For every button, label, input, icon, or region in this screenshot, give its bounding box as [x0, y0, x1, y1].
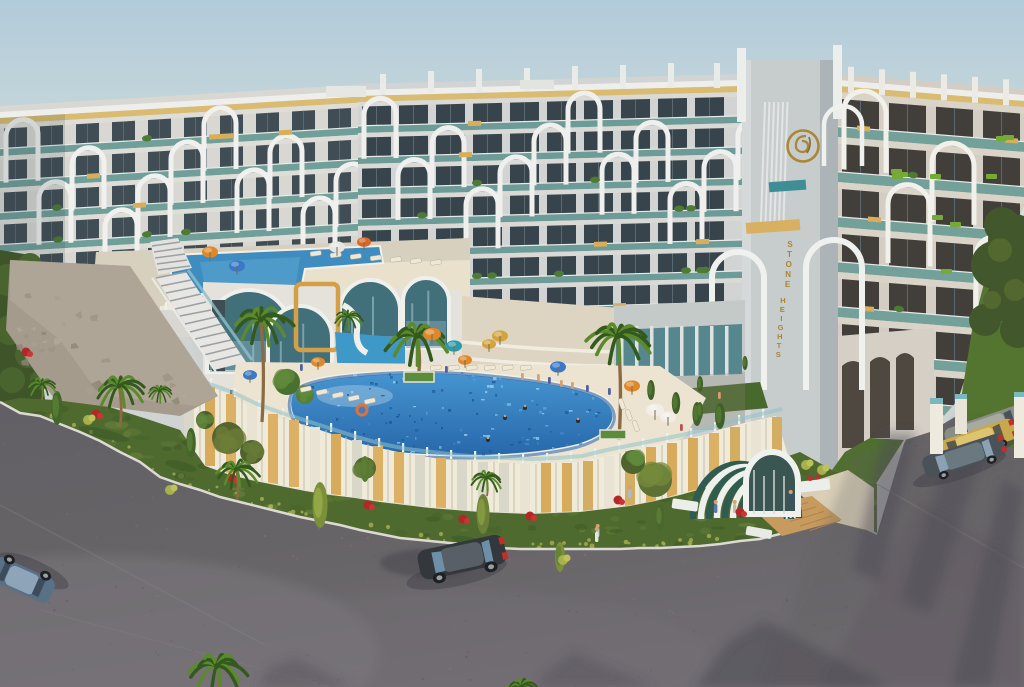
- svg-text:S: S: [787, 240, 793, 249]
- svg-text:N: N: [785, 270, 791, 279]
- svg-text:E: E: [785, 280, 791, 289]
- svg-text:S: S: [776, 350, 781, 359]
- svg-text:T: T: [787, 250, 792, 259]
- svg-text:H: H: [777, 332, 782, 341]
- svg-text:H: H: [780, 296, 785, 305]
- svg-text:E: E: [780, 305, 785, 314]
- svg-text:G: G: [778, 323, 784, 332]
- svg-text:O: O: [786, 260, 792, 269]
- svg-text:I: I: [780, 314, 782, 323]
- svg-text:T: T: [777, 341, 782, 350]
